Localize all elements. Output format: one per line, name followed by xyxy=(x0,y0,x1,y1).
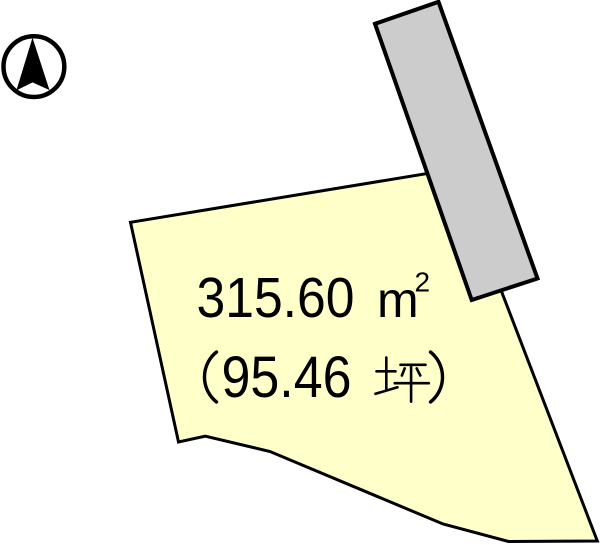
svg-text:m: m xyxy=(377,272,419,328)
svg-text:2: 2 xyxy=(415,267,431,298)
svg-text:95.46: 95.46 xyxy=(222,345,352,410)
svg-text:315.60: 315.60 xyxy=(197,266,355,330)
